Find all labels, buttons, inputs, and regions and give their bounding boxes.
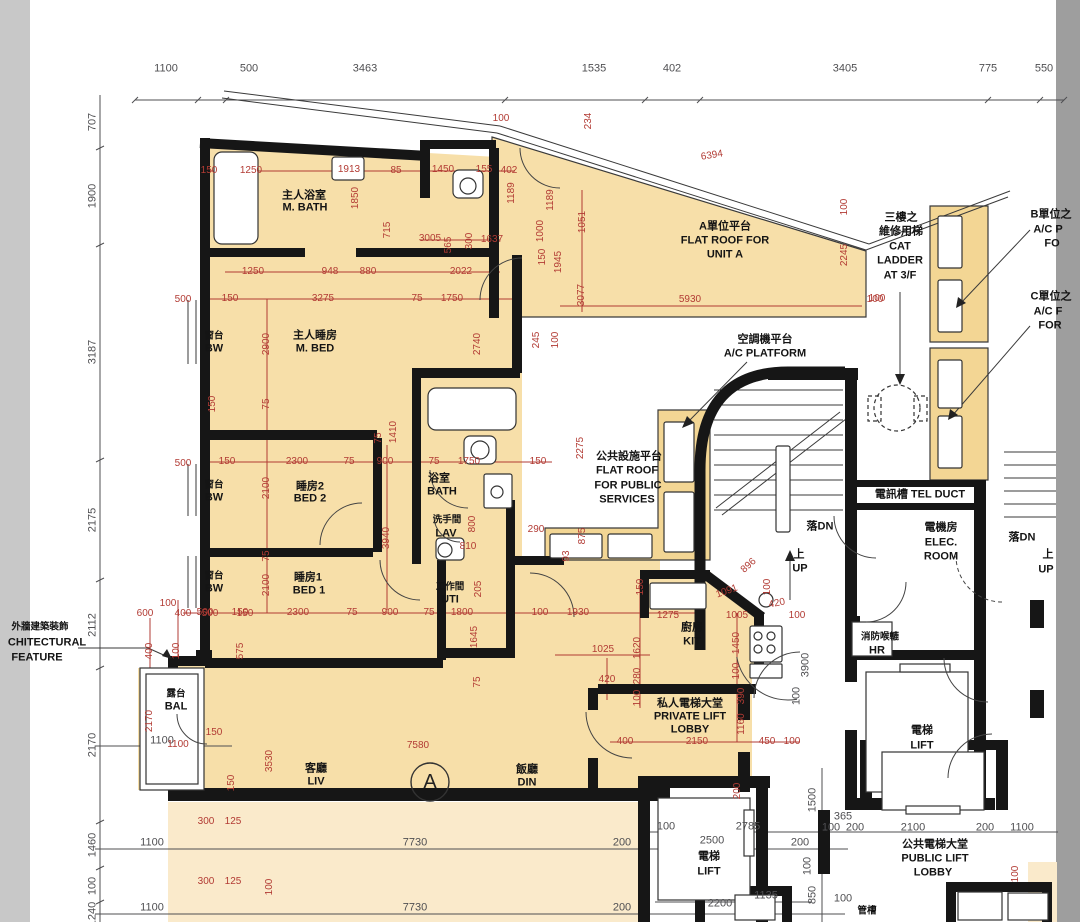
dimension-text: 100 — [869, 294, 886, 304]
dimension-text: 2500 — [700, 836, 724, 847]
dimension-text: 900 — [377, 457, 394, 467]
dimension-text: 100 — [88, 877, 99, 895]
room-label: A/C P — [1033, 225, 1062, 236]
room-label: FOR — [1038, 321, 1061, 332]
dimension-text: 1100 — [140, 903, 164, 914]
room-label: 私人電梯大堂 — [657, 699, 723, 710]
room-label: 露台 — [166, 689, 185, 699]
dimension-text: 880 — [360, 267, 377, 277]
dimension-text: 810 — [460, 542, 477, 552]
dimension-text: 900 — [382, 608, 399, 618]
dimension-text: 1100 — [154, 64, 178, 75]
dimension-text: 1620 — [633, 637, 643, 659]
dimension-text: 2300 — [286, 457, 308, 467]
dimension-text: 2022 — [450, 267, 472, 277]
room-label: DIN — [518, 778, 537, 789]
room-label: 落DN — [807, 522, 834, 533]
dimension-text: 1750 — [441, 294, 463, 304]
dimension-text: 3463 — [353, 64, 377, 75]
room-label: BAL — [165, 702, 188, 713]
dimension-text: 100 — [172, 643, 182, 660]
dimension-text: 150 — [206, 728, 223, 738]
room-label: FO — [1044, 239, 1059, 250]
dimension-text: 1410 — [389, 421, 399, 443]
dimension-text: 300 — [198, 877, 215, 887]
dimension-text: 1189 — [546, 189, 556, 211]
room-label: C單位之 — [1031, 292, 1072, 303]
dimension-text: 400 — [175, 609, 192, 619]
room-label: 洗手間 — [433, 515, 462, 525]
room-label: HR — [869, 646, 885, 657]
dimension-text: 715 — [383, 222, 393, 239]
room-label: LOBBY — [914, 868, 953, 879]
room-label: 消防喉轆 — [861, 632, 899, 642]
dimension-text: 500 — [240, 64, 258, 75]
dimension-text: 75 — [473, 676, 483, 687]
dimension-text: 150 — [208, 396, 218, 413]
dimension-text: 1750 — [458, 457, 480, 467]
dimension-text: 420 — [599, 675, 616, 685]
room-label: 睡房1 — [294, 573, 322, 584]
dimension-text: 85 — [390, 166, 401, 176]
room-label: FLAT ROOF FOR — [681, 236, 769, 247]
room-label: 主人睡房 — [293, 331, 337, 342]
room-label: B單位之 — [1031, 210, 1072, 221]
room-label: PRIVATE LIFT — [654, 712, 726, 723]
dimension-text: 1930 — [567, 608, 589, 618]
dimension-text: 1450 — [732, 632, 742, 654]
room-label: BW — [205, 493, 223, 504]
dimension-text: 100 — [803, 857, 814, 875]
dimension-text: 3077 — [577, 284, 587, 306]
room-label: A單位平台 — [699, 222, 751, 233]
dimension-text: 2112 — [88, 613, 99, 637]
room-label: LAV — [435, 529, 456, 540]
room-label: BED 1 — [293, 586, 325, 597]
dimension-text: 100 — [1011, 866, 1021, 883]
dimension-text: 245 — [532, 332, 542, 349]
dimension-text: 100 — [493, 114, 510, 124]
dimension-text: 200 — [846, 823, 864, 834]
dimension-text: 75 — [428, 457, 439, 467]
dimension-text: 2300 — [287, 608, 309, 618]
dimension-text: 707 — [88, 113, 99, 131]
dimension-text: 100 — [822, 823, 840, 834]
dimension-text: 150 — [222, 294, 239, 304]
room-label: 落DN — [1009, 533, 1036, 544]
room-label: 廚房 — [681, 623, 703, 634]
dimension-text: 2740 — [473, 333, 483, 355]
dimension-text: 75 — [343, 457, 354, 467]
floor-plan-text-layer: 1100500346315354023405775550707190031872… — [0, 0, 1080, 922]
dimension-text: 850 — [808, 886, 819, 904]
dimension-text: 1100 — [1010, 823, 1034, 834]
room-label: CHITECTURAL — [8, 638, 86, 649]
room-label: 窗台 — [204, 480, 223, 490]
room-label: SERVICES — [599, 495, 654, 506]
room-label: ELEC. — [925, 538, 957, 549]
dimension-text: 420 — [768, 597, 786, 610]
room-label: 上 — [1043, 550, 1054, 561]
room-label: 窗台 — [204, 331, 223, 341]
dimension-text: 1900 — [88, 184, 99, 208]
dimension-text: 100 — [633, 690, 643, 707]
room-label: BED 2 — [294, 494, 326, 505]
room-label: FEATURE — [11, 653, 62, 664]
dimension-text: 234 — [584, 113, 594, 130]
dimension-text: 2100 — [262, 477, 272, 499]
dimension-text: 155 — [476, 165, 493, 175]
dimension-text: 150 — [636, 579, 646, 596]
room-label: 電機房 — [925, 523, 958, 534]
room-label: 維修用梯 — [879, 227, 923, 238]
dimension-text: 2150 — [686, 737, 708, 747]
dimension-text: 100 — [789, 611, 806, 621]
dimension-text: 402 — [501, 166, 518, 176]
dimension-text: 450 — [759, 737, 776, 747]
dimension-text: 100 — [265, 879, 275, 896]
dimension-text: 100 — [784, 737, 801, 747]
dimension-text: 3005 — [419, 234, 441, 244]
dimension-text: 2100 — [262, 574, 272, 596]
room-label: 空調機平台 — [738, 335, 793, 346]
dimension-text: 150 — [227, 775, 237, 792]
dimension-text: 93 — [562, 550, 572, 561]
dimension-text: 150 — [538, 249, 548, 266]
dimension-text: 1913 — [338, 165, 360, 175]
room-label: PUBLIC LIFT — [901, 854, 968, 865]
dimension-text: 100 — [834, 894, 852, 905]
dimension-text: 100 — [532, 608, 549, 618]
room-label: 上 — [794, 550, 805, 561]
dimension-text: 1945 — [554, 251, 564, 273]
room-label: M. BATH — [282, 203, 327, 214]
room-label: A/C F — [1034, 307, 1063, 318]
dimension-text: 100 — [792, 687, 803, 705]
dimension-text: 3940 — [382, 527, 392, 549]
room-label: 公共電梯大堂 — [902, 840, 968, 851]
dimension-text: 800 — [468, 516, 478, 533]
room-label: LIFT — [697, 867, 720, 878]
dimension-text: 2245 — [840, 244, 850, 266]
dimension-text: 7730 — [403, 903, 427, 914]
dimension-text: 775 — [979, 64, 997, 75]
room-label: FLAT ROOF — [596, 466, 658, 477]
dimension-text: 1005 — [726, 611, 748, 621]
room-label: UTI — [441, 595, 459, 606]
dimension-text: 1850 — [351, 187, 361, 209]
dimension-text: 100 — [732, 663, 742, 680]
dimension-text: 200 — [733, 783, 743, 800]
dimension-text: 100 — [551, 332, 561, 349]
room-label: 主人浴室 — [282, 191, 326, 202]
dimension-text: 2275 — [576, 437, 586, 459]
room-label: LIV — [307, 777, 324, 788]
dimension-text: 500 — [175, 459, 192, 469]
dimension-text: 1535 — [582, 64, 606, 75]
dimension-text: 2200 — [708, 899, 732, 910]
dimension-text: 200 — [613, 838, 631, 849]
dimension-text: 75 — [262, 398, 272, 409]
dimension-text: 2175 — [88, 508, 99, 532]
dimension-text: 6394 — [700, 149, 724, 162]
floor-plan-sheet: 1100500346315354023405775550707190031872… — [0, 0, 1080, 922]
dimension-text: 3900 — [801, 653, 812, 677]
room-label: 睡房2 — [296, 482, 324, 493]
room-label: A/C PLATFORM — [724, 349, 806, 360]
dimension-text: 200 — [976, 823, 994, 834]
dimension-text: 1250 — [242, 267, 264, 277]
dimension-text: 300 — [465, 233, 475, 250]
dimension-text: 5930 — [679, 295, 701, 305]
dimension-text: 1025 — [592, 645, 614, 655]
dimension-text: 150 — [237, 609, 254, 619]
room-label: 管槽 — [857, 906, 876, 916]
dimension-text: 600 — [137, 609, 154, 619]
room-label: LADDER — [877, 256, 923, 267]
dimension-text: 150 — [530, 457, 547, 467]
dimension-text: 1240 — [88, 902, 99, 922]
dimension-text: 550 — [1035, 64, 1053, 75]
dimension-text: 500 — [202, 609, 219, 619]
dimension-text: 3187 — [88, 340, 99, 364]
room-label: 電訊槽 TEL DUCT — [875, 490, 965, 501]
dimension-text: 1189 — [507, 182, 517, 204]
dimension-text: 1645 — [470, 626, 480, 648]
unit-a-marker: A — [423, 772, 436, 792]
dimension-text: 100 — [657, 822, 675, 833]
dimension-text: 125 — [225, 877, 242, 887]
room-label: 浴室 — [428, 474, 450, 485]
dimension-text: 75 — [374, 432, 384, 443]
room-label: BW — [205, 344, 223, 355]
room-label: CAT — [889, 242, 911, 253]
room-label: UP — [1038, 565, 1053, 576]
dimension-text: 300 — [198, 817, 215, 827]
dimension-text: 100 — [840, 199, 850, 216]
dimension-text: 290 — [528, 525, 545, 535]
dimension-text: 75 — [423, 608, 434, 618]
room-label: LOBBY — [671, 725, 710, 736]
dimension-text: 400 — [145, 643, 155, 660]
dimension-text: 200 — [791, 838, 809, 849]
dimension-text: 1100 — [140, 838, 164, 849]
dimension-text: 75 — [262, 550, 272, 561]
room-label: 窗台 — [204, 571, 223, 581]
dimension-text: 1250 — [240, 166, 262, 176]
room-label: BW — [205, 584, 223, 595]
dimension-text: 75 — [411, 294, 422, 304]
room-label: UNIT A — [707, 250, 743, 261]
room-label: 電梯 — [911, 726, 933, 737]
dimension-text: 575 — [236, 643, 246, 660]
dimension-text: 2170 — [145, 710, 155, 732]
room-label: BATH — [427, 487, 457, 498]
room-label: 外牆建築裝飾 — [11, 622, 68, 632]
dimension-text: 875 — [578, 528, 588, 545]
dimension-text: 1500 — [808, 788, 819, 812]
room-label: ROOM — [924, 552, 958, 563]
dimension-text: 1135 — [754, 891, 778, 902]
dimension-text: 3405 — [833, 64, 857, 75]
dimension-text: 100 — [763, 579, 773, 596]
dimension-text: 896 — [739, 557, 758, 576]
dimension-text: 1460 — [88, 833, 99, 857]
dimension-text: 200 — [613, 903, 631, 914]
dimension-text: 3530 — [265, 750, 275, 772]
dimension-text: 1091 — [715, 583, 739, 600]
dimension-text: 390 — [737, 688, 747, 705]
room-label: LIFT — [910, 741, 933, 752]
room-label: 工作間 — [436, 582, 465, 592]
dimension-text: 7730 — [403, 838, 427, 849]
dimension-text: 2100 — [901, 823, 925, 834]
room-label: 公共設施平台 — [596, 452, 662, 463]
dimension-text: 1000 — [536, 220, 546, 242]
dimension-text: 402 — [663, 64, 681, 75]
room-label: 電梯 — [698, 852, 720, 863]
dimension-text: 7580 — [407, 741, 429, 751]
dimension-text: 2785 — [736, 822, 760, 833]
room-label: KIT — [683, 637, 701, 648]
dimension-text: 1637 — [481, 235, 503, 245]
dimension-text: 1160 — [737, 713, 747, 735]
dimension-text: 1100 — [167, 740, 189, 750]
room-label: FOR PUBLIC — [594, 481, 661, 492]
room-label: AT 3/F — [884, 271, 917, 282]
dimension-text: 400 — [617, 737, 634, 747]
dimension-text: 1275 — [657, 611, 679, 621]
dimension-text: 280 — [633, 668, 643, 685]
dimension-text: 3275 — [312, 294, 334, 304]
room-label: UP — [792, 564, 807, 575]
dimension-text: 2170 — [88, 733, 99, 757]
room-label: M. BED — [296, 344, 335, 355]
dimension-text: 1051 — [578, 211, 588, 233]
room-label: 飯廳 — [516, 765, 538, 776]
dimension-text: 948 — [322, 267, 339, 277]
dimension-text: 500 — [175, 295, 192, 305]
dimension-text: 125 — [225, 817, 242, 827]
dimension-text: 150 — [201, 166, 218, 176]
dimension-text: 565 — [444, 237, 454, 254]
dimension-text: 1450 — [432, 165, 454, 175]
dimension-text: 1800 — [451, 608, 473, 618]
dimension-text: 205 — [474, 581, 484, 598]
room-label: 客廳 — [305, 764, 327, 775]
dimension-text: 150 — [219, 457, 236, 467]
dimension-text: 75 — [346, 608, 357, 618]
dimension-text: 2900 — [262, 333, 272, 355]
room-label: 三樓之 — [885, 213, 918, 224]
